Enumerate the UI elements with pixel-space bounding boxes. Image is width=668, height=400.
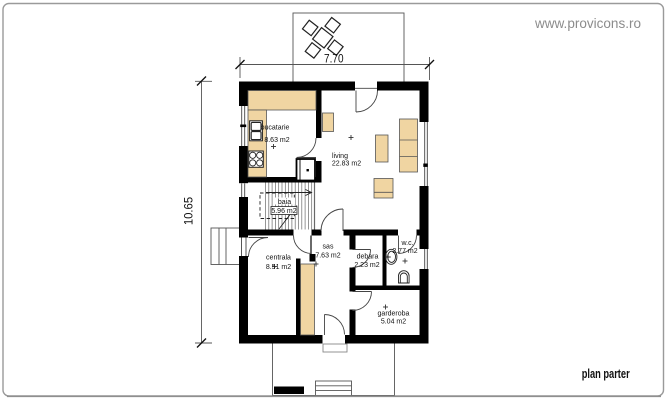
svg-text:8.63 m2: 8.63 m2 (264, 137, 289, 144)
svg-text:bucatarie: bucatarie (261, 125, 290, 132)
svg-text:sas: sas (323, 244, 334, 251)
svg-text:22.83 m2: 22.83 m2 (332, 161, 361, 168)
svg-text:8.51 m2: 8.51 m2 (266, 264, 291, 271)
svg-text:garderoba: garderoba (378, 311, 410, 318)
svg-text:baia: baia (278, 199, 291, 206)
svg-text:www.provicons.ro: www.provicons.ro (534, 16, 641, 31)
svg-text:5.04 m2: 5.04 m2 (381, 319, 406, 326)
svg-text:2.23 m2: 2.23 m2 (354, 262, 379, 269)
svg-text:centrala: centrala (266, 255, 291, 262)
svg-text:7.63 m2: 7.63 m2 (315, 253, 340, 260)
svg-text:2.77 m2: 2.77 m2 (392, 248, 417, 255)
svg-text:debara: debara (357, 254, 379, 261)
svg-text:7.70: 7.70 (324, 53, 344, 65)
svg-text:10.65: 10.65 (184, 197, 196, 225)
svg-text:w.c.: w.c. (400, 240, 413, 247)
svg-text:5.96 m2: 5.96 m2 (271, 208, 296, 215)
svg-text:plan parter: plan parter (582, 367, 630, 381)
svg-text:living: living (332, 153, 348, 160)
